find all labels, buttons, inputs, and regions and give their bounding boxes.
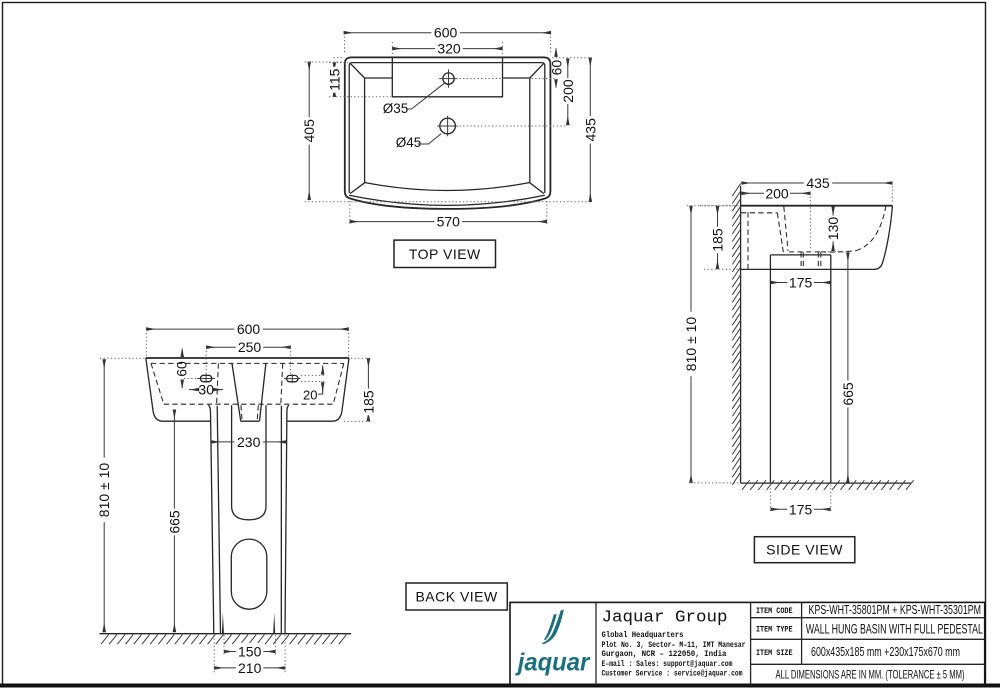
svg-text:Global Headquarters: Global Headquarters xyxy=(602,630,684,640)
svg-text:435: 435 xyxy=(582,118,598,142)
svg-text:ALL DIMENSIONS ARE IN MM. (TOL: ALL DIMENSIONS ARE IN MM. (TOLERANCE ± 5… xyxy=(776,668,965,682)
svg-text:600x435x185 mm +230x175x670 mm: 600x435x185 mm +230x175x670 mm xyxy=(811,644,960,659)
svg-text:KPS-WHT-35801PM + KPS-WHT-3530: KPS-WHT-35801PM + KPS-WHT-35301PM xyxy=(809,602,982,617)
svg-text:150: 150 xyxy=(238,644,262,660)
svg-text:60: 60 xyxy=(549,60,565,76)
svg-text:WALL HUNG BASIN WITH FULL PEDE: WALL HUNG BASIN WITH FULL PEDESTAL xyxy=(806,622,983,637)
svg-text:200: 200 xyxy=(765,185,789,201)
svg-text:ITEM TYPE: ITEM TYPE xyxy=(756,625,793,635)
svg-text:BACK VIEW: BACK VIEW xyxy=(415,589,498,605)
svg-text:665: 665 xyxy=(166,510,182,534)
svg-text:Ø35: Ø35 xyxy=(383,101,409,116)
svg-text:Ø45: Ø45 xyxy=(396,135,422,150)
svg-text:250: 250 xyxy=(238,339,262,355)
svg-text:Jaquar Group: Jaquar Group xyxy=(602,609,728,628)
svg-text:435: 435 xyxy=(806,175,830,191)
svg-text:810 ± 10: 810 ± 10 xyxy=(96,463,112,518)
svg-text:600: 600 xyxy=(434,25,458,41)
svg-text:320: 320 xyxy=(437,41,461,57)
svg-text:jaquar: jaquar xyxy=(515,649,591,677)
svg-text:185: 185 xyxy=(710,228,726,252)
svg-text:60: 60 xyxy=(174,361,190,377)
svg-text:ITEM CODE: ITEM CODE xyxy=(756,606,793,616)
svg-text:ITEM SIZE: ITEM SIZE xyxy=(756,648,793,658)
svg-text:175: 175 xyxy=(789,275,813,291)
svg-text:405: 405 xyxy=(301,119,317,143)
svg-text:210: 210 xyxy=(238,660,262,676)
svg-text:Customer Service : service@jaq: Customer Service : service@jaquar.com xyxy=(602,668,743,678)
svg-text:115: 115 xyxy=(326,68,342,91)
svg-text:SIDE VIEW: SIDE VIEW xyxy=(766,542,843,558)
svg-text:TOP VIEW: TOP VIEW xyxy=(409,246,481,262)
svg-text:Gurgaon, NCR – 122050, India: Gurgaon, NCR – 122050, India xyxy=(602,649,727,659)
svg-text:600: 600 xyxy=(237,321,261,337)
svg-text:200: 200 xyxy=(560,79,576,103)
svg-text:130: 130 xyxy=(825,217,841,241)
svg-text:175: 175 xyxy=(789,501,813,517)
svg-text:185: 185 xyxy=(360,390,376,414)
svg-text:665: 665 xyxy=(840,382,856,406)
svg-text:230: 230 xyxy=(237,434,261,450)
svg-text:30: 30 xyxy=(198,382,214,398)
svg-text:570: 570 xyxy=(437,214,461,230)
svg-text:810 ± 10: 810 ± 10 xyxy=(683,317,699,372)
svg-text:20: 20 xyxy=(303,388,317,403)
